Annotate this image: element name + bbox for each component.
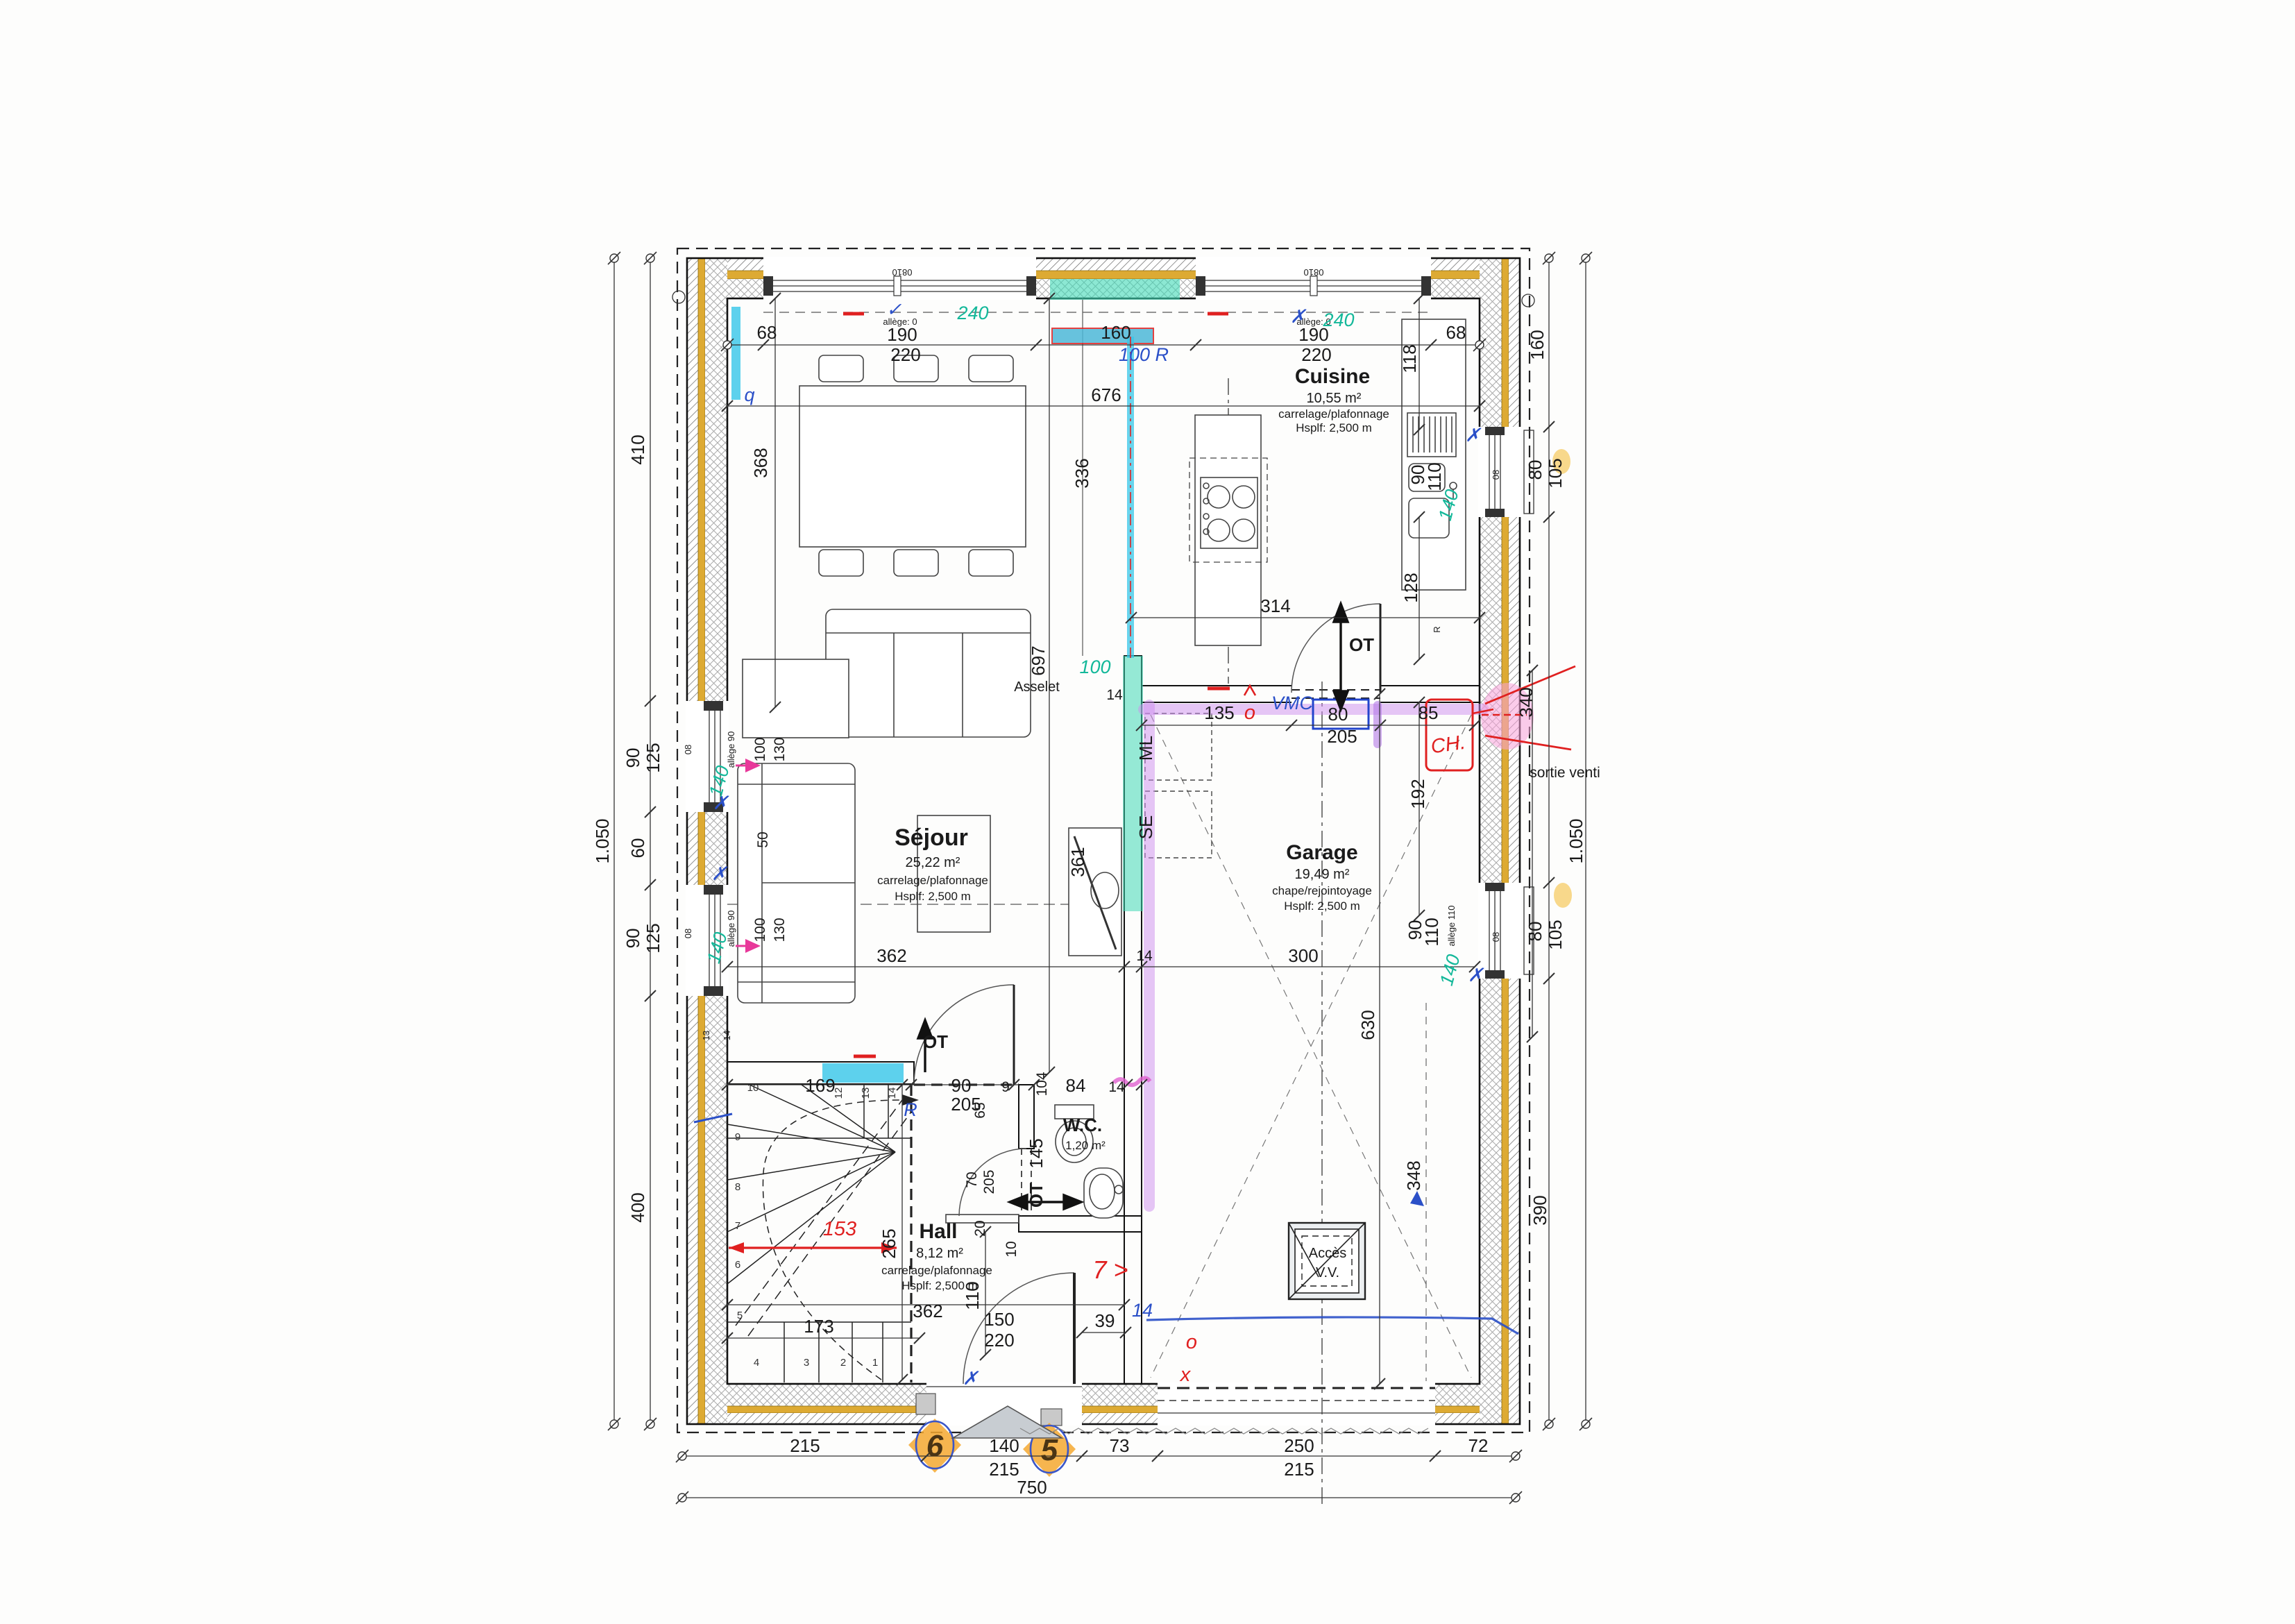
room-name: Cuisine (1295, 365, 1370, 388)
dim: 80 (1328, 704, 1348, 725)
dim: 336 (1072, 458, 1092, 488)
dim: 14 (1136, 948, 1153, 964)
dim: 130 (772, 917, 788, 942)
floor-plan-page: 68 allège: 0 190 220 160 allège: 0 190 2… (0, 0, 2295, 1624)
acces-line2: V.V. (1316, 1265, 1339, 1280)
dim: 215 (1284, 1459, 1314, 1480)
dim: 90 (623, 929, 643, 949)
ml-label: ML (1135, 736, 1156, 761)
sofa (826, 609, 1031, 737)
window-code: 0810 (892, 267, 913, 278)
dim: 118 (1399, 344, 1420, 373)
room-label-garage: Garage 19,49 m² chape/rejointoyage Hsplf… (1272, 841, 1372, 913)
dim: 145 (1026, 1138, 1047, 1168)
room-name: W.C. (1063, 1115, 1102, 1135)
room-label-wc: W.C. 1,20 m² (1063, 1115, 1106, 1152)
dim: 140 (989, 1435, 1019, 1456)
dim: 362 (876, 945, 906, 966)
hw-100: 100 (1079, 657, 1110, 677)
step-number: 1 (872, 1357, 878, 1369)
dim: 169 (805, 1075, 835, 1096)
dim: 85 (1419, 702, 1439, 723)
dim: 361 (1067, 847, 1088, 877)
dim: 215 (989, 1459, 1019, 1480)
dim: 90 (951, 1075, 972, 1096)
hw-14: 14 (1132, 1300, 1153, 1321)
dim: 110 (1421, 917, 1442, 946)
survey-mark-left-icon (672, 291, 685, 303)
hw-q: q (744, 384, 754, 405)
hw-cross: ✗ (1468, 965, 1484, 986)
dim: 173 (804, 1316, 833, 1337)
room-finish: carrelage/plafonnage (1278, 407, 1389, 421)
allege-label: allège 90 (726, 731, 736, 768)
dim: 250 (1284, 1435, 1314, 1456)
mark-r: R (1432, 626, 1442, 632)
dim: 9 (1001, 1079, 1010, 1095)
dim: 125 (643, 743, 663, 772)
hw-7: 7 > (1092, 1255, 1128, 1284)
dim: 750 (1017, 1477, 1047, 1498)
dim: 70 (964, 1172, 980, 1187)
dim: 80 (1525, 460, 1545, 480)
hw-cross: ✗ (711, 863, 728, 884)
window-code: 0810 (1304, 267, 1324, 278)
room-finish: chape/rejointoyage (1272, 884, 1372, 897)
step-number: 10 (747, 1082, 759, 1094)
room-finish: carrelage/plafonnage (877, 874, 988, 887)
dim: 1.050 (592, 818, 613, 863)
orange-smudge (1554, 883, 1572, 908)
room-area: 1,20 m² (1065, 1139, 1106, 1152)
dim: 135 (1204, 702, 1234, 723)
hw-ch: CH. (1430, 731, 1467, 759)
dim: 14 (1108, 1079, 1125, 1095)
dim: 368 (750, 448, 771, 477)
dim: 220 (984, 1330, 1014, 1351)
dim: 125 (643, 923, 663, 953)
room-height: Hsplf: 2,500 m (901, 1279, 978, 1292)
red-caret (1244, 686, 1255, 695)
asselet-label: Asselet (1014, 679, 1060, 695)
dim: 128 (1400, 573, 1421, 602)
hw-x: x (1179, 1364, 1192, 1386)
chair (969, 355, 1013, 382)
room-label-cuisine: Cuisine 10,55 m² carrelage/plafonnage Hs… (1278, 365, 1389, 434)
dim: 150 (984, 1309, 1014, 1330)
hw-o: o (1186, 1331, 1197, 1353)
step-number: 12 (833, 1088, 845, 1099)
hw-240: 240 (1322, 310, 1354, 330)
dim: 220 (890, 344, 920, 365)
room-label-sejour: Séjour 25,22 m² carrelage/plafonnage Hsp… (877, 824, 988, 903)
window-mark: 08 (683, 929, 693, 938)
chair (819, 550, 863, 576)
room-area: 8,12 m² (916, 1246, 963, 1261)
step-number: 4 (754, 1357, 759, 1369)
hw-cross: ✗ (1465, 425, 1482, 446)
dim: 205 (981, 1169, 997, 1194)
hw-100r: 100 R (1119, 344, 1169, 365)
dim: 697 (1028, 645, 1049, 675)
step-number: 3 (804, 1357, 809, 1369)
sortie-venti-label: sortie venti (1530, 765, 1600, 781)
room-name: Hall (919, 1220, 957, 1243)
dim: 105 (1545, 920, 1566, 949)
teal-wall-highlight (1123, 656, 1143, 911)
dim: 300 (1288, 945, 1318, 966)
dim: 676 (1091, 384, 1121, 405)
dim: 100 (752, 737, 768, 761)
room-area: 25,22 m² (906, 855, 960, 870)
room-height: Hsplf: 2,500 m (895, 890, 971, 903)
dim: 14 (1106, 687, 1123, 703)
dim: 60 (627, 838, 648, 858)
chair (969, 550, 1013, 576)
room-height: Hsplf: 2,500 m (1284, 899, 1360, 913)
dim: 362 (913, 1301, 942, 1321)
ot-label: OT (923, 1031, 948, 1052)
dim: 90 (623, 748, 643, 768)
step-number: 13 (860, 1088, 872, 1099)
wall-wc-bottom (1019, 1216, 1142, 1232)
hw-153: 153 (823, 1218, 856, 1240)
dim: 630 (1357, 1010, 1378, 1040)
dim: 160 (1101, 322, 1130, 343)
window-mark: 08 (683, 745, 693, 754)
dim: 160 (1527, 330, 1548, 360)
step-number: 5 (737, 1310, 743, 1321)
sideboard (743, 659, 849, 738)
dim: 72 (1468, 1435, 1489, 1456)
dim: 1.050 (1566, 818, 1586, 863)
furniture-sejour (738, 355, 1121, 1003)
room-area: 19,49 m² (1295, 867, 1350, 882)
dim: 190 (887, 324, 917, 345)
blue-pen-line-garage (1146, 1317, 1518, 1334)
hw-cross: ✗ (1290, 306, 1307, 327)
teal-pier-highlight (1050, 279, 1180, 300)
survey-mark-right-icon (1522, 294, 1534, 307)
dim: 10 (1003, 1241, 1019, 1257)
window-top-left (763, 257, 1036, 300)
dim: 340 (1516, 687, 1536, 717)
floor-plan-drawing: 68 allège: 0 190 220 160 allège: 0 190 2… (0, 0, 2295, 1624)
dim: 100 (752, 917, 768, 942)
dim: 410 (627, 434, 648, 464)
chair (819, 355, 863, 382)
room-name: Garage (1286, 841, 1357, 864)
furniture-garage (1145, 713, 1365, 1299)
cyan-corner-strip (731, 307, 740, 400)
chair (894, 550, 938, 576)
window-mark: 08 (1491, 470, 1501, 480)
allege-label: allège 110 (1446, 905, 1457, 946)
dim: 105 (1545, 458, 1566, 488)
window-top-right (1196, 257, 1431, 300)
room-height: Hsplf: 2,500 m (1296, 421, 1372, 434)
dim: 130 (772, 737, 788, 761)
dim: 65 (972, 1102, 988, 1118)
dim: 265 (879, 1228, 899, 1258)
ot-label: OT (1026, 1183, 1047, 1208)
se-label: SE (1135, 815, 1156, 840)
dim: 205 (1327, 726, 1357, 747)
dim: 220 (1301, 344, 1331, 365)
hw-cross: ✗ (713, 793, 729, 813)
window-mark: 08 (1491, 932, 1501, 942)
dim: 50 (755, 831, 771, 847)
dim: 84 (1066, 1075, 1086, 1096)
hw-r: R (904, 1099, 917, 1120)
dim: 215 (790, 1435, 820, 1456)
hw-240: 240 (956, 303, 988, 323)
acces-vv-hatch (1289, 1223, 1365, 1299)
dim: 390 (1530, 1195, 1550, 1225)
dim: 73 (1110, 1435, 1130, 1456)
hw-o: o (1244, 702, 1255, 724)
dim: 110 (1424, 462, 1445, 491)
step-number: 6 (735, 1259, 740, 1271)
dim: 192 (1407, 779, 1428, 809)
room-name: Séjour (895, 824, 968, 851)
blue-arrow-348 (1410, 1191, 1424, 1206)
step-number: 7 (735, 1220, 740, 1232)
dim: 80 (1525, 922, 1545, 942)
step-number: 8 (735, 1181, 740, 1193)
hw-140: 140 (1436, 952, 1464, 988)
hw-door-number-5: 5 (1041, 1433, 1058, 1467)
hw-cross: ✗ (963, 1368, 979, 1389)
dim: 104 (1034, 1072, 1050, 1096)
hw-check: ✓ (886, 299, 902, 320)
dim: 14 (722, 1031, 732, 1040)
dim: 348 (1403, 1160, 1424, 1190)
step-number: 14 (886, 1088, 898, 1099)
acces-line1: Accès (1309, 1246, 1346, 1261)
dim: 39 (1095, 1310, 1115, 1331)
ot-label: OT (1349, 634, 1374, 655)
dining-table (799, 386, 1026, 547)
insulation-left (698, 258, 705, 1424)
dim: 68 (1446, 322, 1466, 343)
hw-door-number-6: 6 (926, 1429, 944, 1463)
room-finish: carrelage/plafonnage (881, 1264, 992, 1277)
dim: 68 (757, 322, 777, 343)
dim: 400 (627, 1192, 648, 1222)
step-number: 9 (735, 1131, 740, 1143)
room-area: 10,55 m² (1307, 391, 1362, 406)
dim: 13 (701, 1031, 711, 1040)
hw-vmc: VMC (1271, 693, 1314, 713)
dim: 314 (1260, 595, 1290, 616)
dim: 20 (972, 1220, 988, 1236)
kitchen-island (1195, 415, 1261, 645)
step-number: 2 (840, 1357, 846, 1369)
